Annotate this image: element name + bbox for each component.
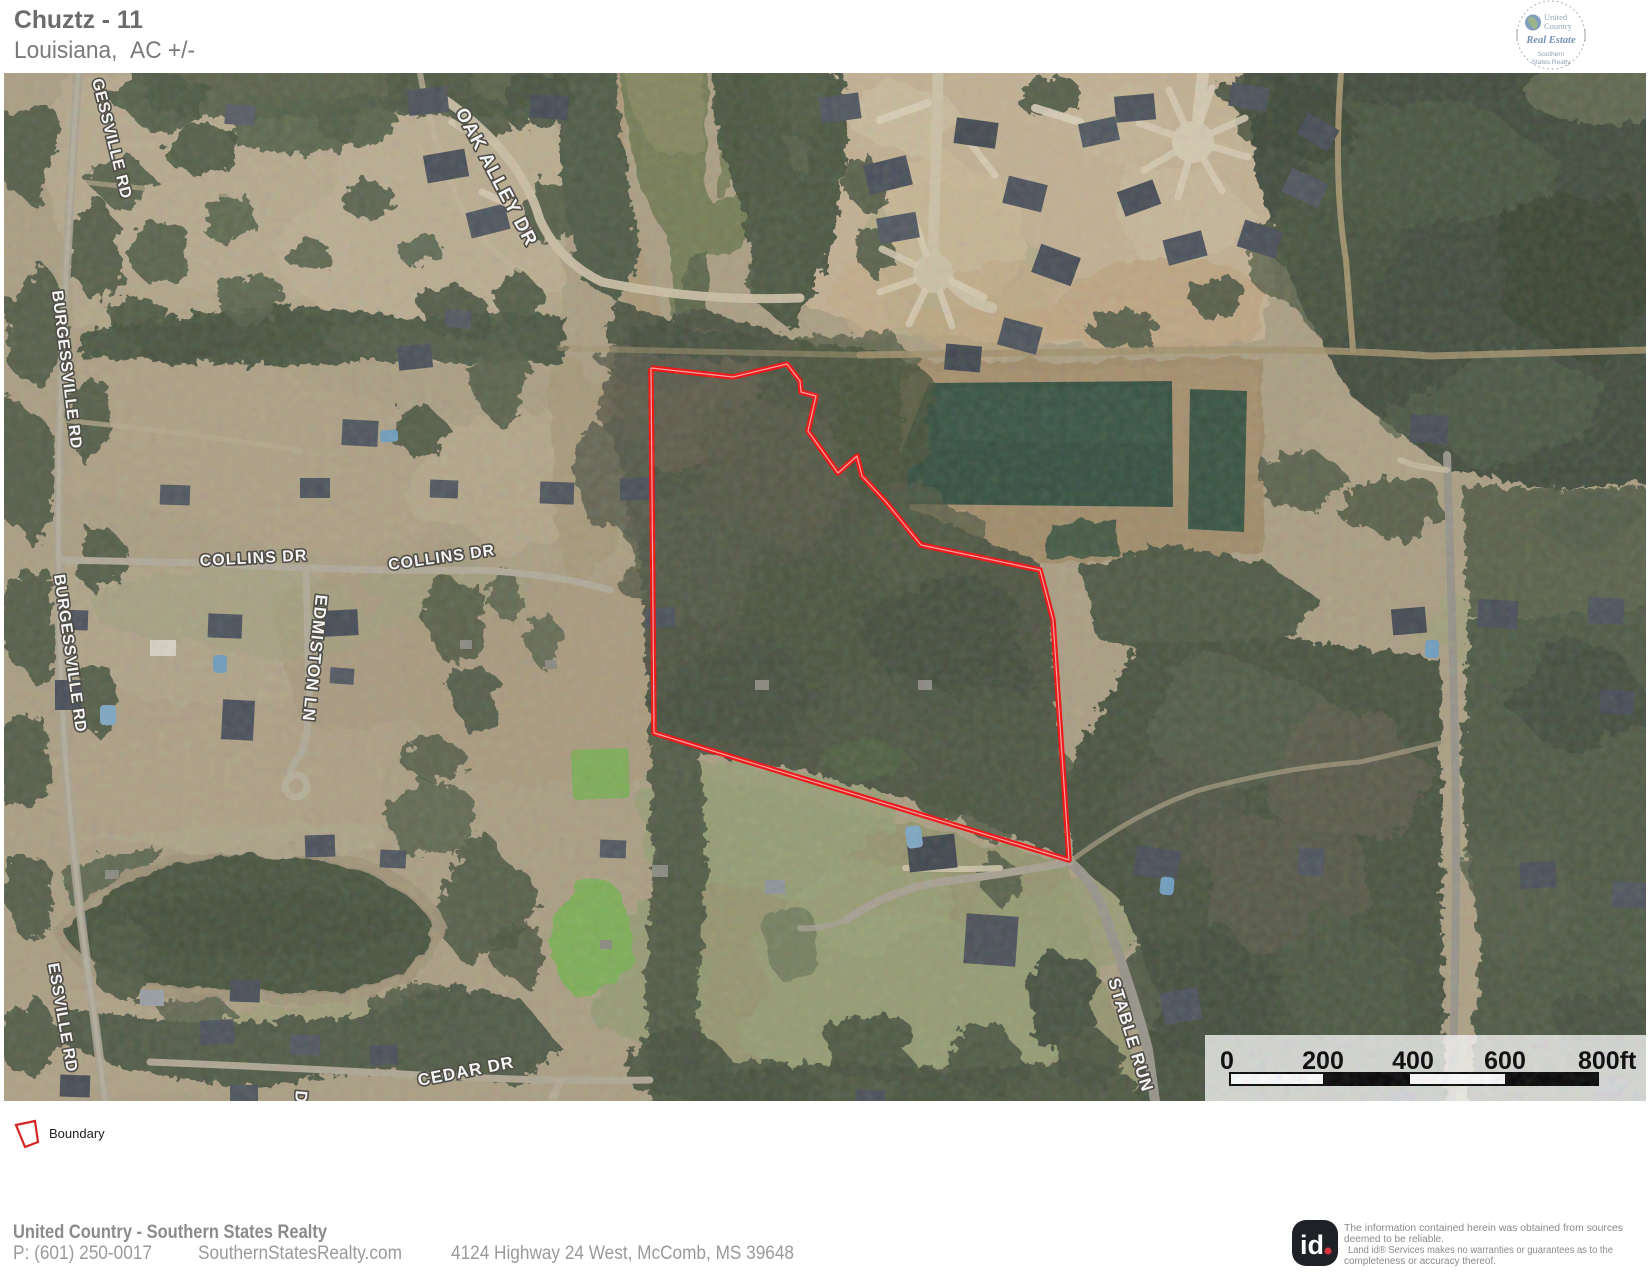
svg-text:P: (601) 250-0017: P: (601) 250-0017 (13, 1243, 152, 1264)
svg-text:Chuztz - 11: Chuztz - 11 (14, 6, 143, 34)
svg-text:Southern: Southern (1538, 51, 1565, 58)
svg-text:United Country - Southern Stat: United Country - Southern States Realty (13, 1222, 327, 1243)
svg-text:id: id (1300, 1230, 1324, 1260)
svg-text:States Realty: States Realty (1532, 59, 1571, 66)
svg-text:4124 Highway 24 West, McComb,: 4124 Highway 24 West, McComb, MS 39648 (451, 1243, 794, 1264)
svg-text:Boundary: Boundary (49, 1126, 105, 1141)
svg-text:Real Estate: Real Estate (1525, 35, 1576, 46)
svg-text:Land id® Services makes no war: Land id® Services makes no warranties or… (1348, 1245, 1613, 1256)
svg-text:The information contained here: The information contained herein was obt… (1344, 1223, 1623, 1234)
svg-text:completeness or accuracy there: completeness or accuracy thereof. (1344, 1256, 1496, 1267)
svg-text:Country: Country (1544, 21, 1573, 31)
svg-text:Louisiana, AC +/-: Louisiana, AC +/- (14, 37, 195, 64)
svg-text:deemed to be reliable.: deemed to be reliable. (1344, 1234, 1444, 1245)
svg-text:SouthernStatesRealty.com: SouthernStatesRealty.com (198, 1243, 402, 1264)
